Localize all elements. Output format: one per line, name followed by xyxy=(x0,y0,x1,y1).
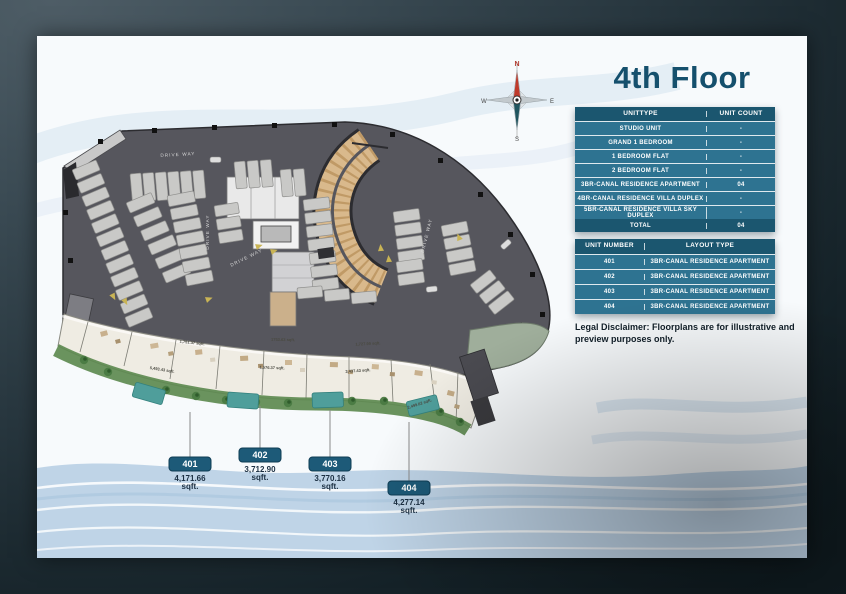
parking-stalls xyxy=(72,159,514,327)
palm-tree xyxy=(162,386,170,394)
column xyxy=(63,210,68,215)
parking-stall xyxy=(309,250,336,264)
parking-stall xyxy=(155,248,184,269)
furniture xyxy=(210,357,215,362)
area-annotation: 1753.63 sqft. xyxy=(271,337,295,342)
parking-stall xyxy=(110,267,138,287)
roof-terrace xyxy=(466,323,549,373)
parking-stall xyxy=(351,291,377,304)
unit-callout-402: 4023,712.90sqft. xyxy=(239,406,281,482)
unit-type-row: GRAND 1 BEDROOM- xyxy=(575,136,775,150)
parking-stall xyxy=(86,200,114,220)
column xyxy=(80,300,85,305)
unit-number-pill xyxy=(388,481,430,495)
parking-stall xyxy=(91,213,119,233)
lane-arrow-icon xyxy=(205,295,214,303)
unit-type-row-type: 1 BEDROOM FLAT xyxy=(575,154,707,160)
unit-divider xyxy=(391,359,393,402)
lane-arrow-icon xyxy=(270,247,279,255)
unit-area-unit: sqft. xyxy=(182,482,199,491)
unit-number-row: 4013BR-CANAL RESIDENCE APARTMENT xyxy=(575,255,775,270)
furniture xyxy=(100,330,108,337)
unit-type-row-value: - xyxy=(707,154,775,160)
parking-stall xyxy=(148,234,177,255)
unit-number-table-header: UNIT NUMBER LAYOUT TYPE xyxy=(575,239,775,255)
unit-type-row-value: - xyxy=(707,140,775,146)
parking-stall xyxy=(130,173,143,202)
unit-number-row-value: 3BR-CANAL RESIDENCE APARTMENT xyxy=(645,274,775,280)
service-box xyxy=(460,349,499,401)
area-annotation: 1,751.37 sqft. xyxy=(179,339,205,347)
unit-number-header-cell: UNIT NUMBER xyxy=(575,243,645,250)
palm-tree xyxy=(104,368,112,376)
parking-stall xyxy=(280,169,293,197)
wave-stroke xyxy=(37,544,807,551)
driveway-label: DRIVE WAY xyxy=(205,214,210,249)
furniture xyxy=(454,404,460,409)
total-label: TOTAL xyxy=(575,223,707,229)
palm-tree xyxy=(222,396,230,404)
parking-stall xyxy=(176,230,205,246)
palm-tree xyxy=(252,398,260,406)
lobby xyxy=(270,292,296,326)
column xyxy=(180,342,185,347)
lane-arrow-icon xyxy=(109,293,118,302)
parking-stall xyxy=(168,171,181,200)
slide-background: DRIVE WAYDRIVE WAYDRIVE WAYDRIVE WAY 1,7… xyxy=(0,0,846,594)
parking-stall xyxy=(247,160,260,188)
furniture xyxy=(285,360,292,365)
unit-divider xyxy=(262,350,264,395)
unit-type-row: STUDIO UNIT- xyxy=(575,122,775,136)
entry-ramp-strip xyxy=(64,130,126,173)
parking-stall xyxy=(308,237,335,251)
car-ramp xyxy=(333,143,388,287)
unit-number-row-value: 3BR-CANAL RESIDENCE APARTMENT xyxy=(645,289,775,295)
unit-number-table: UNIT NUMBER LAYOUT TYPE 4013BR-CANAL RES… xyxy=(575,239,775,314)
furniture xyxy=(348,370,353,374)
parking-stall xyxy=(441,221,469,237)
lane-arrow-icon xyxy=(255,242,264,250)
area-annotations: 1,751.37 sqft.1753.63 sqft.1,727.99 sqft… xyxy=(149,337,432,410)
unit-type-table: UNITTYPE UNIT COUNT STUDIO UNIT-GRAND 1 … xyxy=(575,107,775,232)
unit-number-row: 4043BR-CANAL RESIDENCE APARTMENT xyxy=(575,300,775,314)
area-annotation: 1,727.99 sqft. xyxy=(355,340,380,346)
parking-stall xyxy=(140,220,169,241)
parking-stall xyxy=(398,271,425,286)
driveway-label: DRIVE WAY xyxy=(420,218,433,253)
pools xyxy=(132,382,440,417)
service-box xyxy=(317,247,334,259)
elevator xyxy=(261,226,291,242)
unit-type-row-value: - xyxy=(707,210,775,216)
unit-number-row: 4033BR-CANAL RESIDENCE APARTMENT xyxy=(575,285,775,300)
driveway-label: DRIVE WAY xyxy=(229,248,263,268)
column xyxy=(438,158,443,163)
unit-type-row-value: 04 xyxy=(707,182,775,188)
car-icon xyxy=(500,239,512,250)
service-box xyxy=(495,322,527,346)
parking-stall xyxy=(120,294,148,314)
unit-type-row: 1 BEDROOM FLAT- xyxy=(575,150,775,164)
parking-stall xyxy=(167,191,196,207)
wave-stroke xyxy=(37,148,577,216)
palm-tree xyxy=(319,400,323,404)
unit-type-row: 4BR-CANAL RESIDENCE VILLA DUPLEX- xyxy=(575,192,775,206)
area-annotation: 1,576.37 sqft. xyxy=(259,365,284,371)
unit-number-row-type: 402 xyxy=(575,274,645,280)
palm-tree xyxy=(107,369,111,373)
parking-stall xyxy=(470,270,496,294)
parking-stall xyxy=(96,227,124,247)
palm-tree xyxy=(284,399,292,407)
parking-stall xyxy=(179,244,208,260)
parking-deck xyxy=(63,122,550,375)
unit-number-text: 404 xyxy=(401,483,416,493)
unit-area-value: 4,171.66 xyxy=(174,474,206,483)
parking-stall xyxy=(77,173,105,193)
unit-number-pill xyxy=(169,457,211,471)
parking-stall xyxy=(479,280,505,304)
furniture xyxy=(372,364,379,369)
parking-stall xyxy=(173,217,202,233)
parking-stall xyxy=(216,216,241,231)
parking-stall xyxy=(293,169,306,197)
palm-tree xyxy=(459,419,463,423)
residences-band xyxy=(58,314,486,428)
unit-type-row-type: 3BR-CANAL RESIDENCE APARTMENT xyxy=(575,182,707,188)
parking-stall xyxy=(101,240,129,260)
column xyxy=(68,258,73,263)
palm-tree xyxy=(351,398,355,402)
parking-stall xyxy=(395,222,422,237)
unit-number-row-value: 3BR-CANAL RESIDENCE APARTMENT xyxy=(645,304,775,310)
palm-tree xyxy=(436,408,444,416)
service-box xyxy=(68,334,89,351)
furniture xyxy=(431,380,437,385)
pool xyxy=(312,392,344,408)
palm-tree xyxy=(287,400,291,404)
compass-e-label: E xyxy=(550,99,554,105)
unit-type-row-type: GRAND 1 BEDROOM xyxy=(575,140,707,146)
parking-stall xyxy=(115,280,143,300)
parking-stall xyxy=(133,206,162,227)
unit-type-row: 2 BEDROOM FLAT- xyxy=(575,164,775,178)
parking-stall xyxy=(143,172,156,201)
parking-stall xyxy=(444,234,472,250)
column xyxy=(152,128,157,133)
palm-tree xyxy=(83,357,87,361)
unit-area-unit: sqft. xyxy=(252,473,269,482)
lane-arrow-icon xyxy=(377,244,384,251)
column xyxy=(372,361,377,366)
palm-trees xyxy=(80,356,464,426)
total-value: 04 xyxy=(707,223,775,229)
parking-stall xyxy=(182,257,211,273)
unit-callout-401: 4014,171.66sqft. xyxy=(169,412,211,491)
column xyxy=(390,132,395,137)
unit-number-pill xyxy=(239,448,281,462)
parking-stall xyxy=(82,187,110,207)
palm-tree xyxy=(80,356,88,364)
palm-tree xyxy=(195,393,199,397)
column xyxy=(540,312,545,317)
parking-stall xyxy=(218,229,243,244)
unit-type-row-value: - xyxy=(707,126,775,132)
area-annotation: 5,493.43 sqft. xyxy=(149,365,175,374)
parking-stall xyxy=(396,258,423,273)
area-annotation: 2,499.62 sqft. xyxy=(407,397,432,410)
page-title: 4th Floor xyxy=(577,60,787,96)
parking-stall xyxy=(193,170,206,199)
unit-divider xyxy=(80,322,88,352)
unit-type-row-value: - xyxy=(707,168,775,174)
corner-wedge xyxy=(63,162,79,199)
parking-stall xyxy=(312,277,339,291)
lane-arrows xyxy=(109,232,462,306)
building-core xyxy=(227,177,314,326)
parking-stall xyxy=(125,307,153,327)
furniture xyxy=(414,370,423,376)
palm-tree xyxy=(255,399,259,403)
lane-arrow-icon xyxy=(385,255,392,262)
unit-number-row-type: 403 xyxy=(575,289,645,295)
parking-stall xyxy=(396,235,423,250)
parking-stall xyxy=(393,208,420,223)
wave-stroke xyxy=(37,504,807,512)
unit-type-table-header: UNITTYPE UNIT COUNT xyxy=(575,107,775,122)
unit-number-row-type: 401 xyxy=(575,259,645,265)
parking-stall xyxy=(303,197,330,211)
compass-rose-icon: N S W E xyxy=(480,56,556,142)
unit-type-table-total-row: TOTAL 04 xyxy=(575,219,775,232)
parking-stall xyxy=(305,210,332,224)
palm-tree xyxy=(383,398,387,402)
column xyxy=(120,331,125,336)
greenery-strip xyxy=(56,350,468,430)
unit-divider xyxy=(170,340,176,379)
parked-cars xyxy=(210,157,512,292)
unit-type-row-value: - xyxy=(707,196,775,202)
furniture xyxy=(447,390,455,397)
unit-area-unit: sqft. xyxy=(322,482,339,491)
column xyxy=(212,125,217,130)
furniture xyxy=(330,362,338,367)
column xyxy=(332,122,337,127)
furniture xyxy=(150,343,159,349)
parking-stall xyxy=(324,288,350,301)
palm-tree xyxy=(456,418,464,426)
area-annotation: 3,437.43 sqft. xyxy=(345,367,370,374)
palm-tree xyxy=(225,397,229,401)
wave-stroke xyxy=(37,494,807,501)
furniture xyxy=(168,351,174,356)
service-box xyxy=(470,396,495,426)
palm-tree xyxy=(380,397,388,405)
wave-band xyxy=(37,464,807,558)
unit-type-row-type: 5BR-CANAL RESIDENCE VILLA SKY DUPLEX xyxy=(575,207,707,219)
parking-stall xyxy=(449,260,477,276)
stair-core xyxy=(272,252,314,292)
compass-s-label: S xyxy=(515,137,519,142)
parking-stall xyxy=(155,172,168,201)
parking-stall xyxy=(446,247,474,263)
service-box xyxy=(485,347,510,366)
parking-stall xyxy=(297,286,323,299)
wave-stroke xyxy=(37,483,807,491)
unit-divider xyxy=(430,364,436,412)
column xyxy=(508,232,513,237)
unit-type-row: 3BR-CANAL RESIDENCE APARTMENT04 xyxy=(575,178,775,192)
wave-stroke xyxy=(592,434,807,440)
lane-arrow-icon xyxy=(121,298,130,307)
unit-furniture xyxy=(100,330,460,409)
unit-type-row: 5BR-CANAL RESIDENCE VILLA SKY DUPLEX- xyxy=(575,206,775,219)
wave-stroke xyxy=(37,528,807,536)
parking-stall xyxy=(234,161,247,189)
unit-divider xyxy=(124,332,132,366)
parking-stall xyxy=(214,202,239,217)
unit-number-row: 4023BR-CANAL RESIDENCE APARTMENT xyxy=(575,270,775,285)
palm-tree xyxy=(165,387,169,391)
unit-callout-403: 4033,770.16sqft. xyxy=(309,410,351,491)
parking-stall xyxy=(180,171,193,200)
unit-count-header-cell: UNIT COUNT xyxy=(707,111,775,118)
palm-tree xyxy=(348,397,356,405)
unit-type-row-type: STUDIO UNIT xyxy=(575,126,707,132)
unit-callouts: 4014,171.66sqft.4023,712.90sqft.4033,770… xyxy=(169,406,430,515)
parking-stall xyxy=(162,262,191,283)
car-icon xyxy=(426,286,438,293)
parking-stall xyxy=(170,204,199,220)
unit-area-value: 3,712.90 xyxy=(244,465,276,474)
driveway-labels: DRIVE WAYDRIVE WAYDRIVE WAYDRIVE WAY xyxy=(160,151,433,268)
unit-number-row-value: 3BR-CANAL RESIDENCE APARTMENT xyxy=(645,259,775,265)
palm-tree xyxy=(192,392,200,400)
unit-number-text: 402 xyxy=(252,450,267,460)
compass-n-label: N xyxy=(514,61,519,68)
column xyxy=(272,123,277,128)
unit-type-row-type: 2 BEDROOM FLAT xyxy=(575,168,707,174)
driveway-label: DRIVE WAY xyxy=(160,151,195,158)
unit-number-pill xyxy=(309,457,351,471)
unit-number-text: 401 xyxy=(182,459,197,469)
furniture xyxy=(258,364,263,368)
palm-tree xyxy=(439,409,443,413)
pool xyxy=(406,395,440,417)
pool xyxy=(227,392,259,409)
column xyxy=(530,272,535,277)
furniture xyxy=(300,368,305,372)
parking-stall xyxy=(488,291,514,315)
wave-stroke xyxy=(597,402,807,408)
unit-number-text: 403 xyxy=(322,459,337,469)
pool xyxy=(132,382,166,405)
furniture xyxy=(240,356,248,361)
legal-disclaimer: Legal Disclaimer: Floorplans are for ill… xyxy=(575,322,807,345)
parking-stall xyxy=(126,192,155,213)
unit-dividers xyxy=(80,322,458,422)
unit-type-row-type: 4BR-CANAL RESIDENCE VILLA DUPLEX xyxy=(575,196,707,202)
furniture xyxy=(195,349,202,355)
compass-w-label: W xyxy=(481,99,487,105)
lane-arrow-icon xyxy=(455,232,463,241)
column xyxy=(307,358,312,363)
layout-type-header-cell: LAYOUT TYPE xyxy=(645,243,775,250)
parking-stall xyxy=(311,264,338,278)
unit-divider xyxy=(306,353,307,399)
unit-area-value: 3,770.16 xyxy=(314,474,346,483)
unit-area-value: 4,277.14 xyxy=(393,498,425,507)
service-box xyxy=(63,294,94,334)
column xyxy=(98,139,103,144)
unit-divider xyxy=(216,346,220,389)
corridor xyxy=(62,316,484,386)
floorplan-page: DRIVE WAYDRIVE WAYDRIVE WAYDRIVE WAY 1,7… xyxy=(37,36,807,558)
unit-number-row-type: 404 xyxy=(575,304,645,310)
parking-stall xyxy=(106,254,134,274)
unit-divider xyxy=(456,372,458,422)
structural-columns xyxy=(63,122,545,374)
parking-stall xyxy=(398,249,425,264)
parking-stall xyxy=(306,224,333,238)
furniture xyxy=(115,339,121,344)
palm-tree xyxy=(316,399,324,407)
column xyxy=(436,369,441,374)
unit-type-header-cell: UNITTYPE xyxy=(575,111,707,118)
unit-area-unit: sqft. xyxy=(401,506,418,515)
column xyxy=(478,192,483,197)
unit-callout-404: 4044,277.14sqft. xyxy=(388,422,430,515)
furniture xyxy=(390,372,395,376)
column xyxy=(243,352,248,357)
parking-stall xyxy=(185,270,214,286)
parking-stall xyxy=(72,160,100,180)
car-icon xyxy=(210,157,221,163)
parking-stall xyxy=(260,159,273,187)
